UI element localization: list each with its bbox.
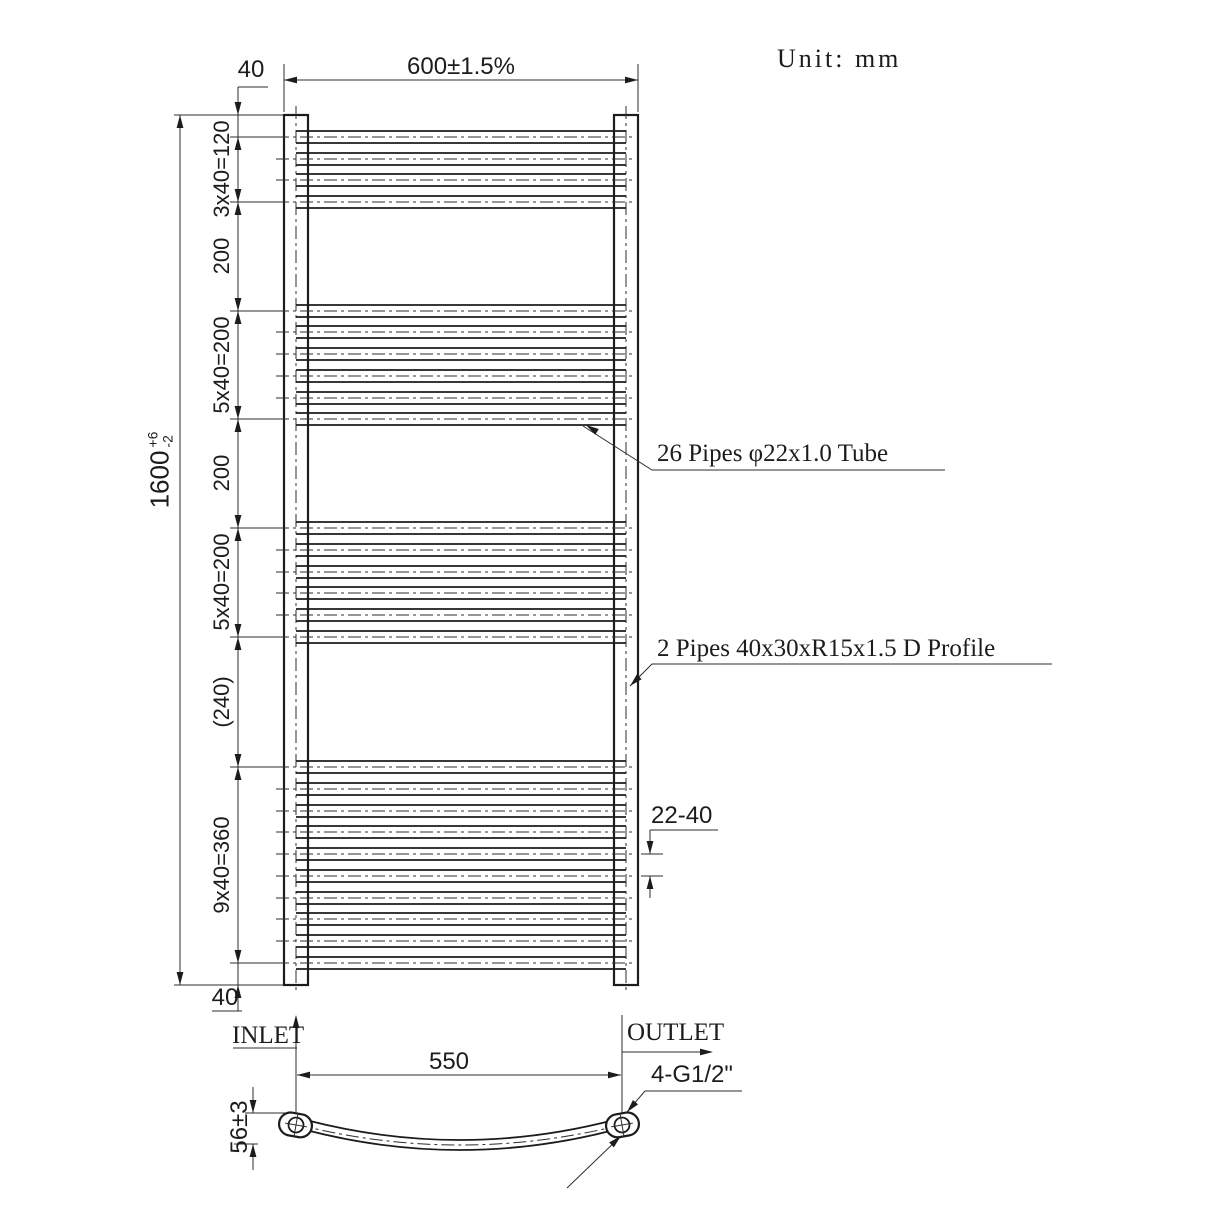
- outlet-fitting: [604, 1111, 640, 1139]
- bow-depth-dimension-label: 56±3: [227, 1100, 253, 1153]
- segment-dimension-label: (240): [210, 676, 234, 727]
- profile-note: 2 Pipes 40x30xR15x1.5 D Profile: [657, 635, 995, 663]
- pipe-group-2: [276, 305, 634, 425]
- segment-dimension-label: 3x40=120: [210, 120, 234, 217]
- height-lower-tolerance: -2: [160, 432, 175, 448]
- segment-dimension-label: 5x40=200: [210, 533, 234, 630]
- segment-dimension-label: 200: [210, 455, 234, 492]
- thread-note: 4-G1/2": [651, 1062, 733, 1088]
- segment-dimension-label: 9x40=360: [210, 816, 234, 913]
- height-tolerance: +6 -2: [145, 432, 174, 448]
- pipe-group-1: [276, 131, 634, 208]
- height-upper-tolerance: +6: [145, 432, 160, 448]
- pipe-group-3: [276, 522, 634, 643]
- height-value: 1600: [146, 451, 175, 509]
- bottom-view-linework: [277, 1111, 640, 1150]
- top-offset-dimension-label: 40: [238, 57, 265, 83]
- height-dimension-label: 1600 +6 -2: [145, 432, 174, 509]
- inlet-label: INLET: [232, 1022, 304, 1050]
- inlet-fitting: [277, 1111, 313, 1139]
- segment-dimension-label: 5x40=200: [210, 316, 234, 413]
- pipe-pitch-dimension-label: 22-40: [651, 803, 712, 829]
- segment-dimension-label: 200: [210, 238, 234, 275]
- centers-dimension-label: 550: [429, 1049, 469, 1075]
- width-dimension-label: 600±1.5%: [407, 54, 515, 80]
- bottom-offset-dimension-label: 40: [212, 985, 239, 1011]
- pipe-group-4: [276, 761, 634, 969]
- front-view-linework: [276, 106, 638, 994]
- drawing-linework: [0, 0, 1214, 1214]
- outlet-label: OUTLET: [627, 1019, 724, 1047]
- tube-note: 26 Pipes φ22x1.0 Tube: [657, 440, 888, 468]
- unit-note: Unit: mm: [777, 45, 901, 74]
- technical-drawing-canvas: Unit: mm 600±1.5% 40 1600 +6 -2 3x40=120…: [0, 0, 1214, 1214]
